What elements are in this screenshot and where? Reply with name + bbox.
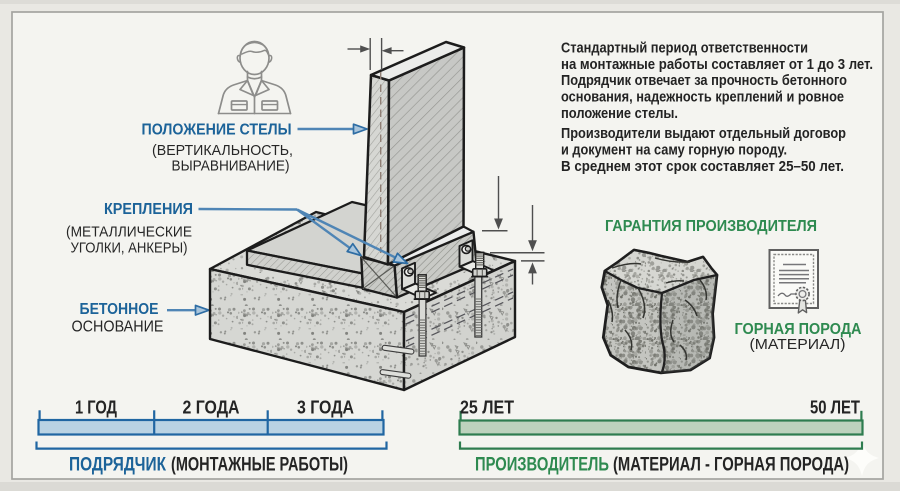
- svg-text:(МОНТАЖНЫЕ РАБОТЫ): (МОНТАЖНЫЕ РАБОТЫ): [171, 454, 348, 476]
- svg-text:УГОЛКИ, АНКЕРЫ): УГОЛКИ, АНКЕРЫ): [71, 239, 188, 256]
- svg-text:ПРОИЗВОДИТЕЛЬ: ПРОИЗВОДИТЕЛЬ: [475, 454, 609, 476]
- svg-text:ВЫРАВНИВАНИЕ): ВЫРАВНИВАНИЕ): [172, 158, 290, 175]
- svg-text:50 ЛЕТ: 50 ЛЕТ: [810, 397, 861, 418]
- svg-text:КРЕПЛЕНИЯ: КРЕПЛЕНИЯ: [104, 201, 193, 218]
- svg-text:25 ЛЕТ: 25 ЛЕТ: [460, 397, 515, 418]
- svg-text:ПОДРЯДЧИК: ПОДРЯДЧИК: [69, 454, 166, 476]
- svg-text:Стандартный период ответственн: Стандартный период ответственности: [561, 40, 808, 56]
- svg-text:основания, надежность креплени: основания, надежность креплений и ровное: [561, 90, 844, 106]
- svg-text:БЕТОННОЕ: БЕТОННОЕ: [80, 301, 159, 318]
- svg-text:положение стелы.: положение стелы.: [561, 106, 678, 122]
- svg-text:Подрядчик отвечает за прочност: Подрядчик отвечает за прочность бетонног…: [561, 73, 847, 89]
- svg-text:3 ГОДА: 3 ГОДА: [297, 397, 354, 418]
- svg-text:Производители выдают отдельный: Производители выдают отдельный договор: [561, 126, 846, 142]
- svg-text:ГАРАНТИЯ ПРОИЗВОДИТЕЛЯ: ГАРАНТИЯ ПРОИЗВОДИТЕЛЯ: [605, 218, 817, 235]
- svg-text:(ВЕРТИКАЛЬНОСТЬ,: (ВЕРТИКАЛЬНОСТЬ,: [152, 142, 293, 159]
- svg-text:ПОЛОЖЕНИЕ СТЕЛЫ: ПОЛОЖЕНИЕ СТЕЛЫ: [142, 121, 292, 138]
- svg-text:и документ на саму горную поро: и документ на саму горную породу.: [561, 143, 787, 159]
- svg-text:2 ГОДА: 2 ГОДА: [183, 397, 240, 418]
- svg-text:(МАТЕРИАЛ - ГОРНАЯ ПОРОДА): (МАТЕРИАЛ - ГОРНАЯ ПОРОДА): [613, 454, 849, 476]
- svg-text:на монтажные работы составляет: на монтажные работы составляет от 1 до 3…: [561, 57, 873, 73]
- svg-text:В среднем этот срок составляе: В среднем этот срок составляет 25–50 лет…: [561, 159, 844, 175]
- svg-text:(МАТЕРИАЛ): (МАТЕРИАЛ): [750, 336, 846, 353]
- svg-text:1 ГОД: 1 ГОД: [75, 397, 117, 418]
- svg-text:(МЕТАЛЛИЧЕСКИЕ: (МЕТАЛЛИЧЕСКИЕ: [66, 224, 192, 241]
- svg-text:ОСНОВАНИЕ: ОСНОВАНИЕ: [72, 319, 164, 336]
